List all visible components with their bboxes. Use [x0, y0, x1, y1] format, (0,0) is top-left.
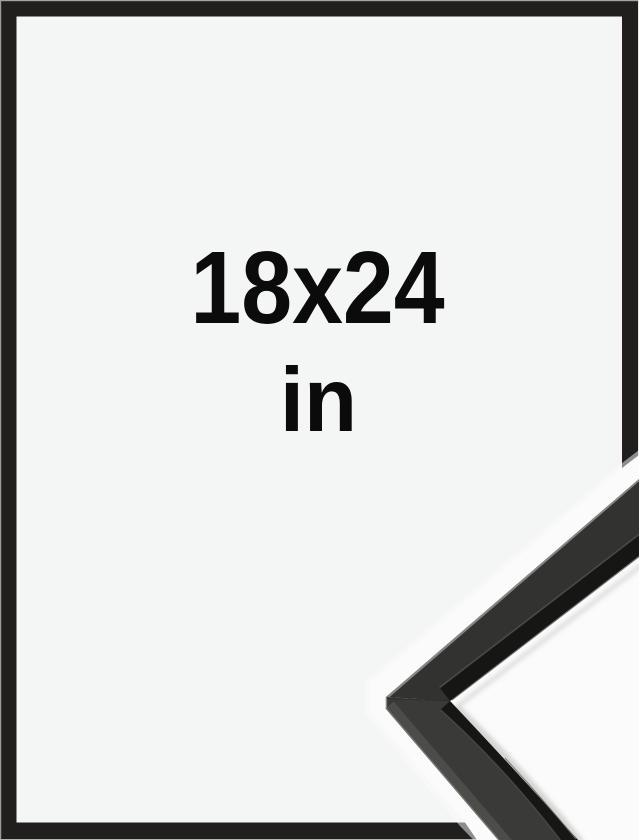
svg-text:in: in	[280, 348, 357, 450]
svg-text:18x24: 18x24	[190, 230, 444, 345]
